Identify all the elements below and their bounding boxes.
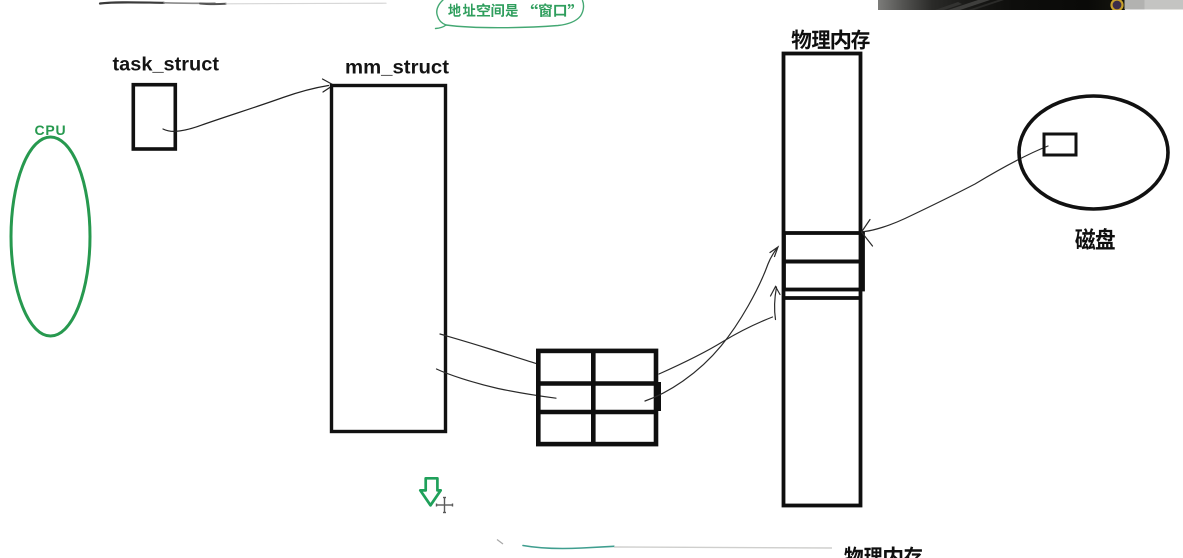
svg-text:task_struct: task_struct: [113, 55, 220, 76]
svg-text:mm_struct: mm_struct: [345, 58, 450, 79]
